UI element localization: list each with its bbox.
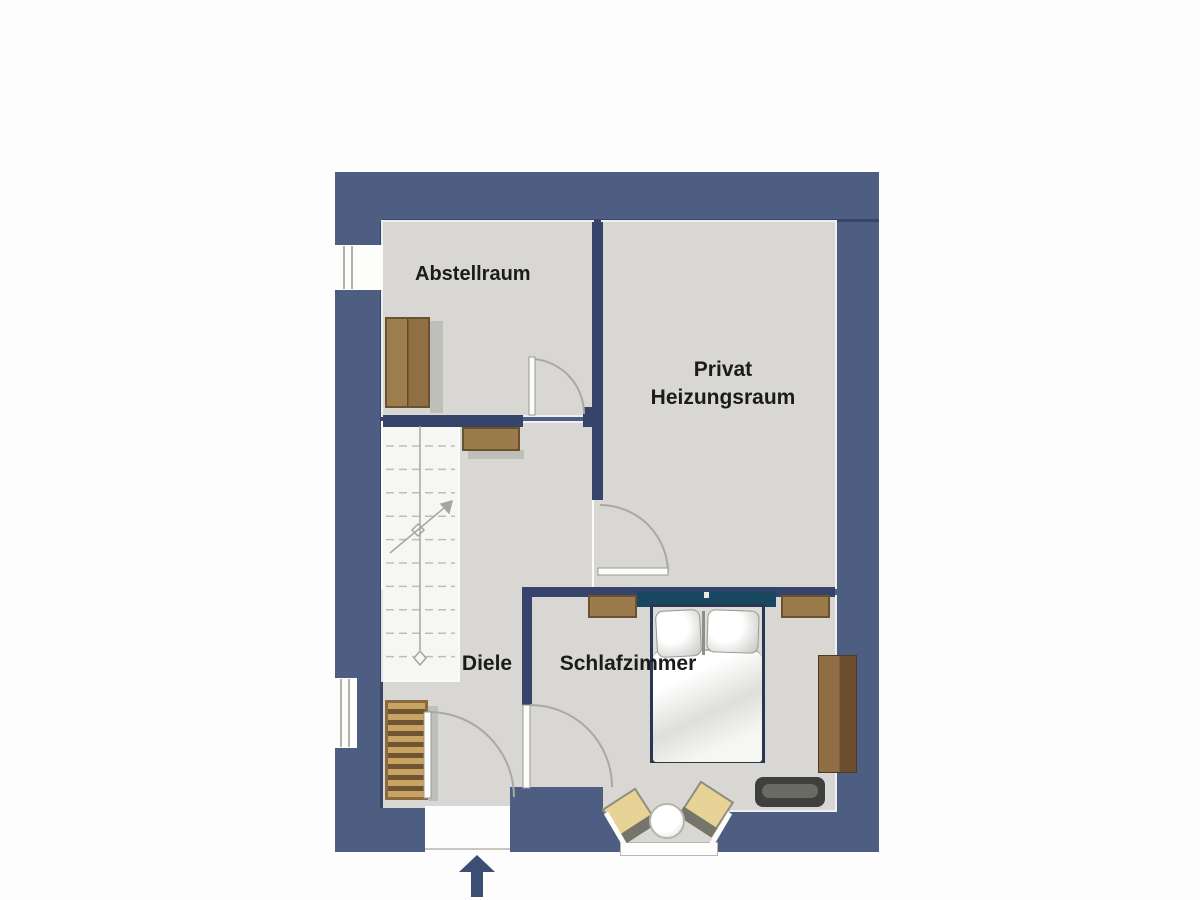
storage-cabinet	[385, 317, 430, 408]
label-abstellraum: Abstellraum	[415, 263, 531, 286]
entry-opening	[425, 806, 510, 852]
label-heizungsraum-line2: Heizungsraum	[651, 384, 796, 412]
pillow-right	[706, 609, 759, 654]
wall-stub-abstellraum-door	[583, 407, 592, 427]
floor-plan: Abstellraum Privat Heizungsraum Diele Sc…	[0, 0, 1200, 900]
label-heizungsraum-line1: Privat	[651, 356, 796, 384]
label-heizungsraum: Privat Heizungsraum	[651, 356, 796, 412]
sideboard-shadow	[468, 450, 524, 459]
staircase	[383, 423, 458, 680]
wardrobe	[818, 655, 857, 773]
wall-diele-heizungsraum	[592, 222, 603, 500]
window-left-bottom	[335, 678, 357, 748]
arrow-head	[459, 855, 495, 872]
label-schlafzimmer: Schlafzimmer	[560, 652, 697, 676]
label-diele: Diele	[462, 652, 512, 676]
headboard-notch	[704, 592, 709, 598]
window-left-top	[335, 245, 383, 290]
round-table	[649, 803, 685, 839]
hall-shelf	[385, 700, 428, 800]
entrance-arrow-icon	[459, 855, 495, 897]
wall-schlafzimmer-left	[522, 588, 532, 705]
cabinet-shadow	[430, 321, 443, 413]
wall-abstellraum-bottom	[383, 415, 523, 427]
pillow-gap	[702, 611, 705, 655]
pillow-left	[655, 609, 702, 658]
arrow-shaft	[471, 871, 483, 897]
bay-window	[620, 842, 718, 856]
shelf-shadow	[428, 706, 438, 801]
doorway-schlafzimmer	[522, 705, 532, 787]
hall-sideboard	[462, 427, 520, 451]
nightstand-left	[588, 595, 637, 618]
dresser-top	[762, 784, 818, 798]
doorway-heizungsraum	[592, 500, 603, 587]
wall-bottom-center-block	[510, 787, 603, 852]
nightstand-right	[781, 595, 830, 618]
